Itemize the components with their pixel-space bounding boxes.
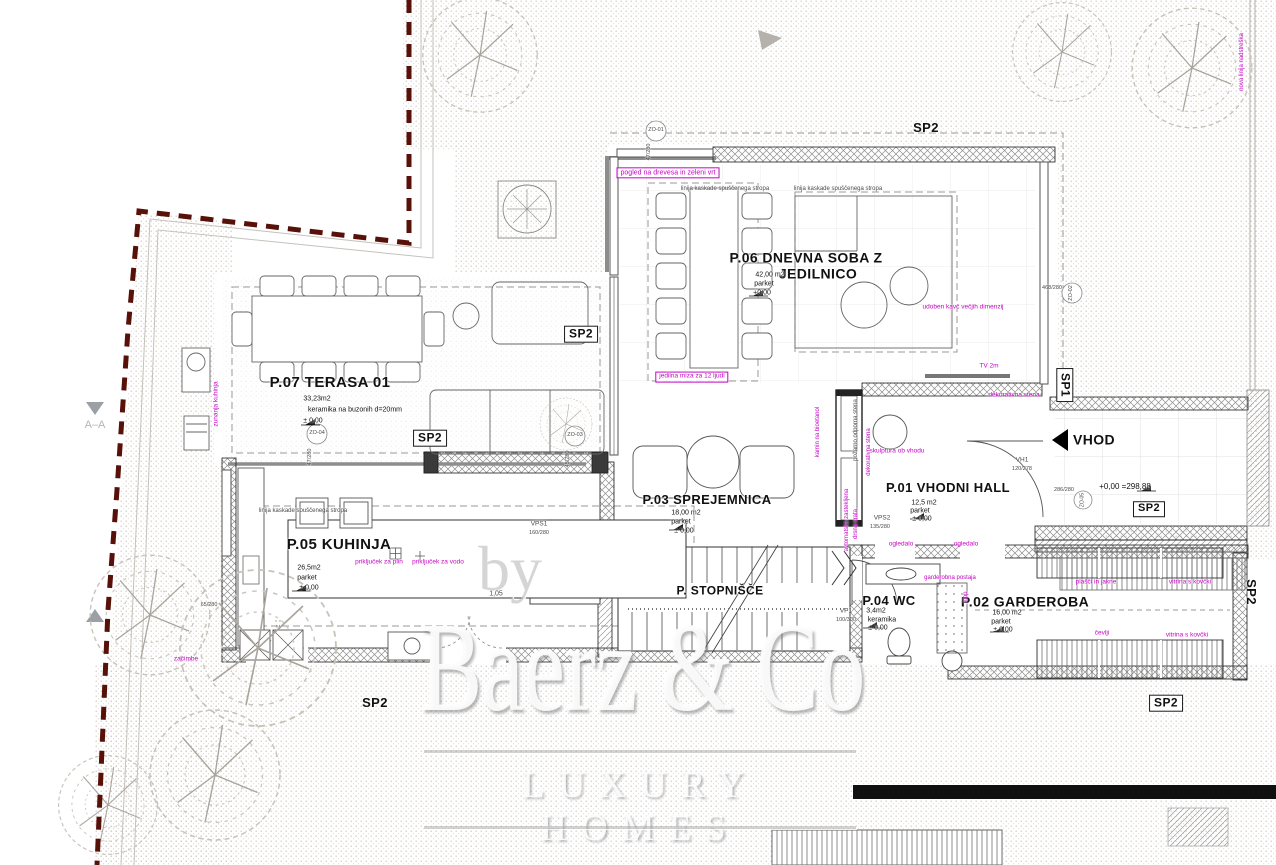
black-bar [853,785,1276,799]
pergola-strip [772,830,1002,865]
hatched-patch [1168,808,1228,846]
floor-plan-page: by Baerz & Co LUXURY HOMES P.07 TERASA 0… [0,0,1276,865]
tv-line [925,374,1010,378]
fireplace-wall [836,390,862,526]
floor-plan-drawing [0,0,1276,865]
dining-table-set [656,188,772,368]
kitchen-island [288,520,686,598]
